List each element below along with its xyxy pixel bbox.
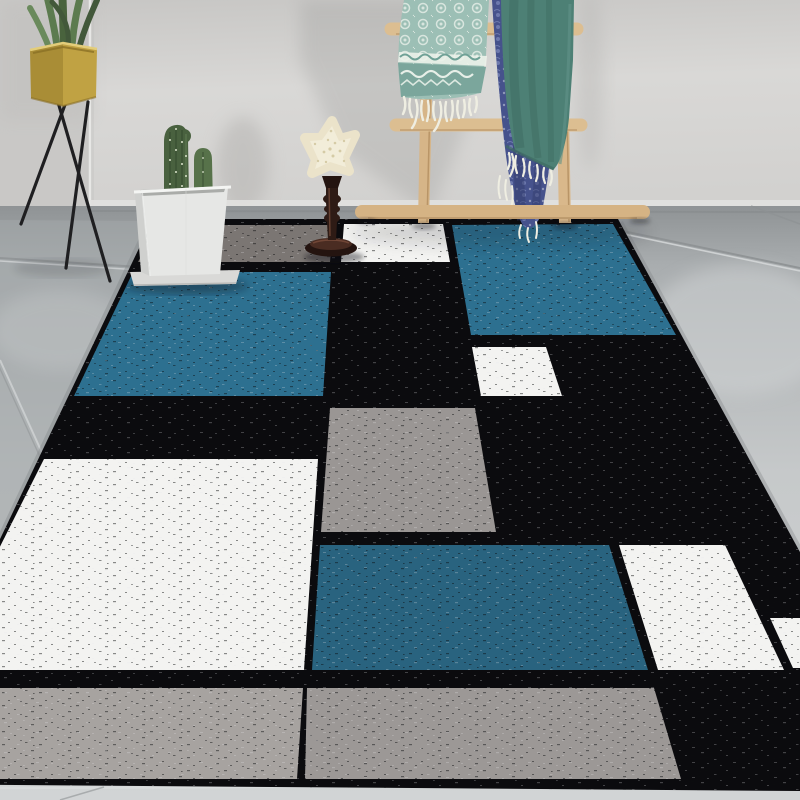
product-photo-mondrian-rug: Mondrian-style geometric area rug in tea… — [0, 0, 800, 800]
brass-pot — [30, 43, 97, 106]
scene-svg — [0, 0, 800, 800]
ladder-rug-shadow — [350, 219, 650, 245]
